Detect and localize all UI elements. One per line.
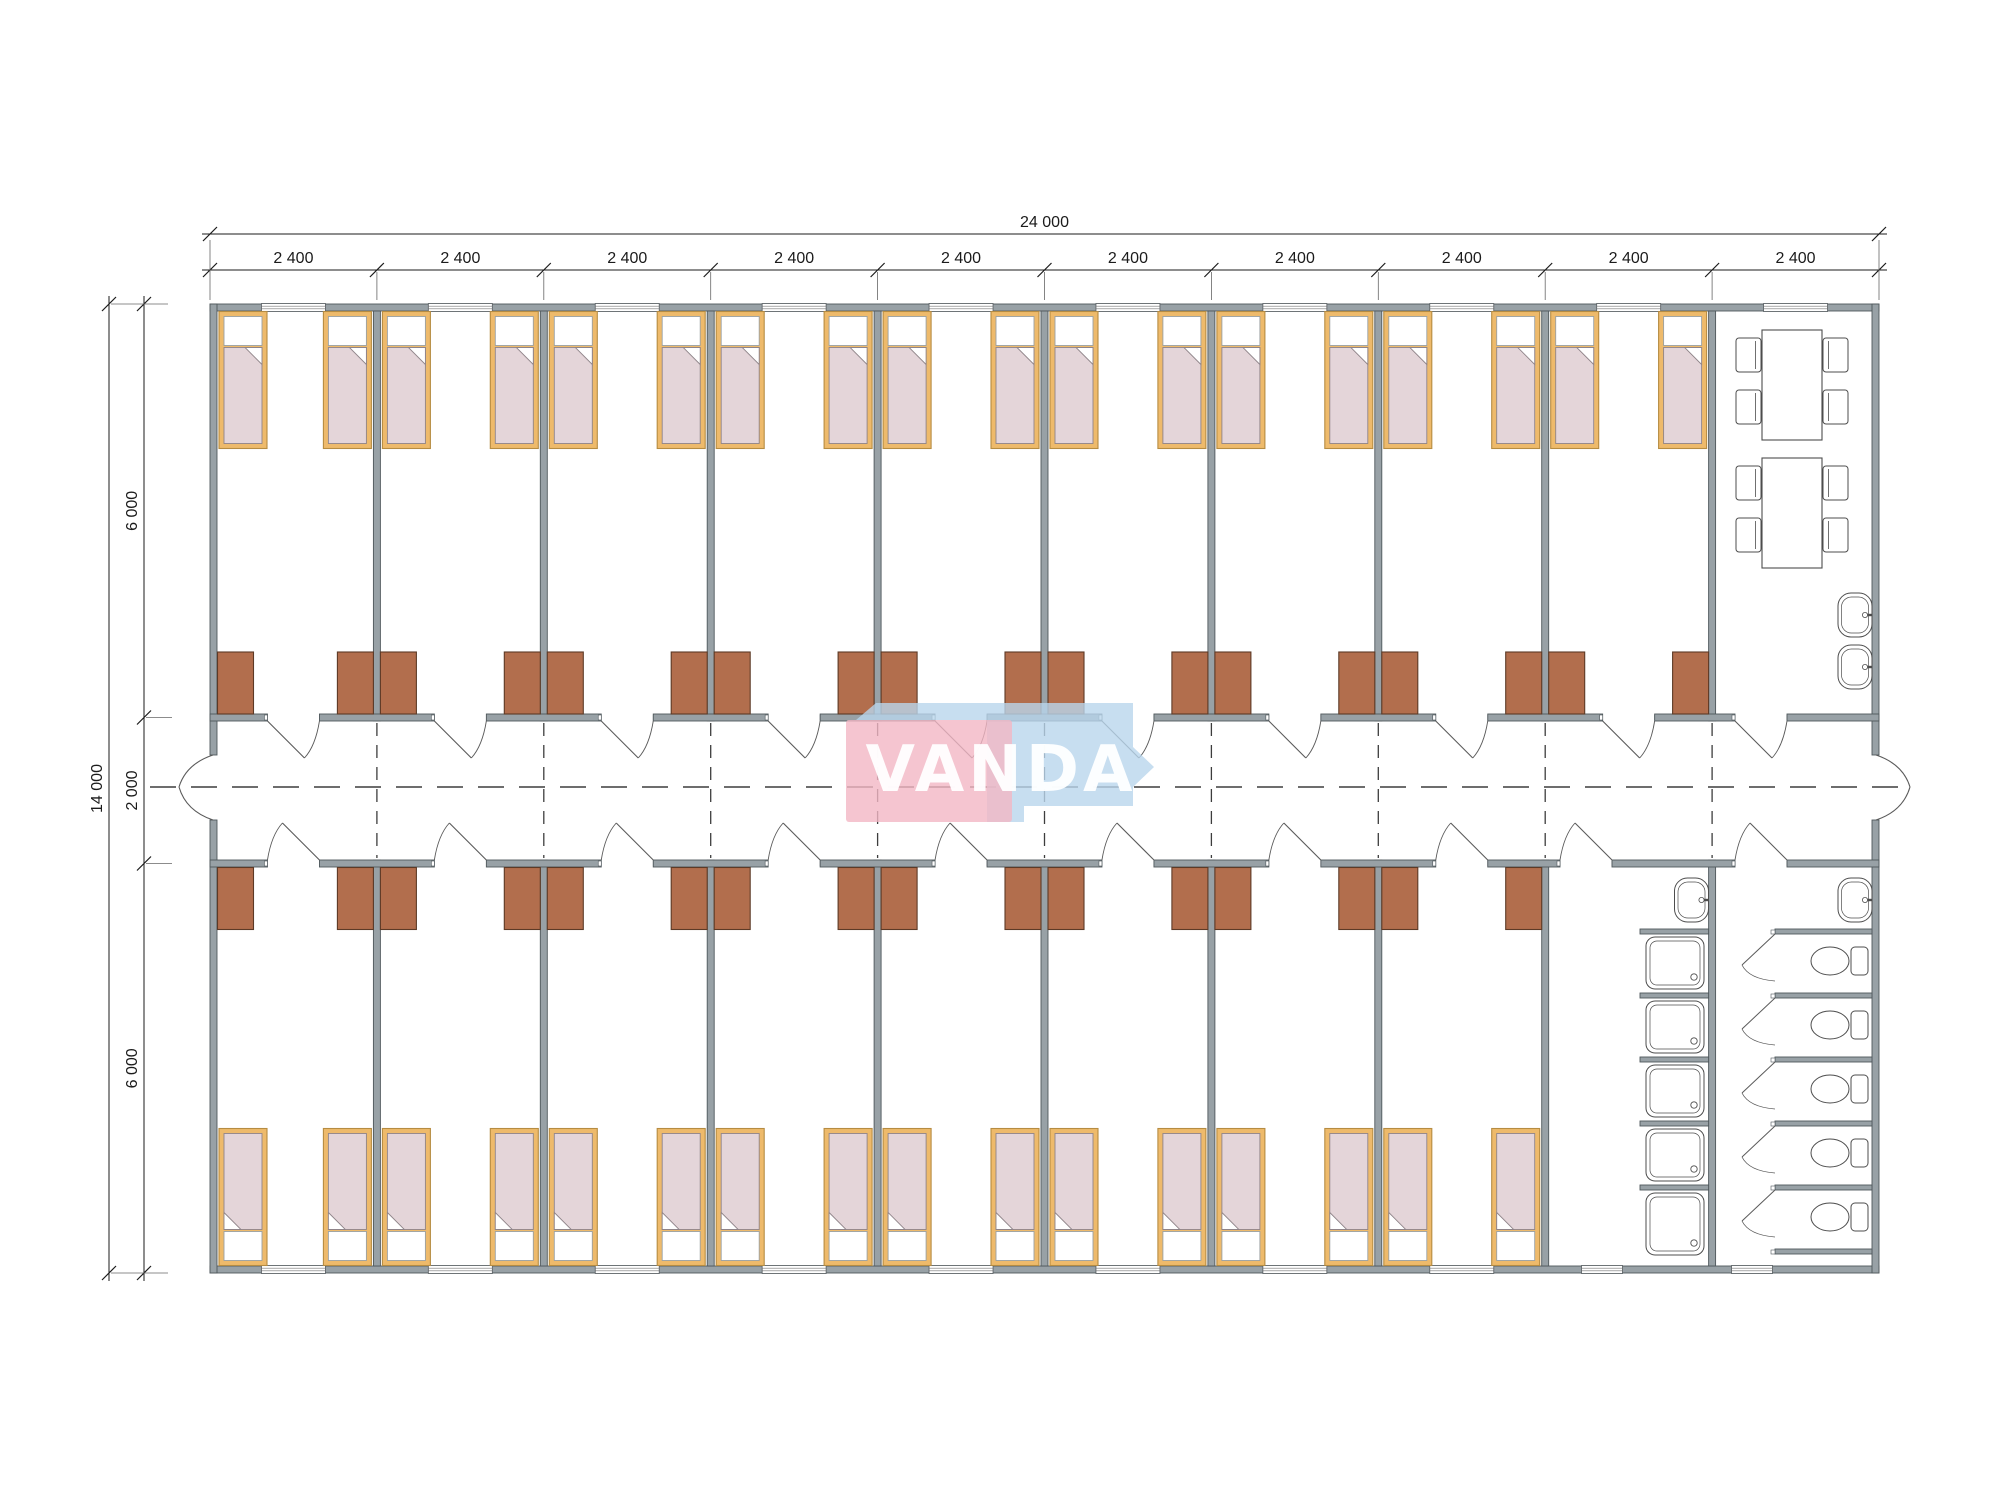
window — [1732, 1266, 1773, 1274]
chair — [1736, 518, 1761, 552]
sink-tap — [1699, 897, 1704, 902]
door-swing — [1139, 721, 1154, 758]
door-leaf — [616, 823, 653, 860]
bed-pillow — [662, 1232, 700, 1261]
dim-label: 2 400 — [1275, 250, 1315, 267]
dim-label: 24 000 — [1020, 214, 1069, 231]
stall-partition — [1775, 1057, 1872, 1062]
door-swing — [1560, 823, 1575, 860]
wall-cap — [264, 715, 267, 720]
corridor-wall — [1612, 860, 1735, 867]
bed-blanket — [996, 348, 1034, 444]
corridor-wall — [1321, 714, 1436, 721]
bed-blanket — [1664, 348, 1702, 444]
door-leaf — [1117, 823, 1154, 860]
wardrobe — [337, 868, 373, 930]
bed-blanket — [1055, 348, 1093, 444]
corridor-wall — [1154, 860, 1269, 867]
stall-partition — [1775, 1121, 1872, 1126]
corridor-wall — [1787, 714, 1879, 721]
sink-tap — [1862, 664, 1867, 669]
stall-partition — [1775, 1249, 1872, 1254]
window — [762, 1266, 826, 1274]
dim-label: 6 000 — [124, 491, 141, 531]
wall-cap — [264, 861, 267, 866]
toilet-bowl — [1811, 1075, 1849, 1103]
bed-blanket — [1163, 348, 1201, 444]
dim-label: 14 000 — [89, 764, 106, 813]
window — [762, 304, 826, 312]
wall-cap — [1732, 715, 1735, 720]
entrance-door-leaf — [1876, 755, 1910, 787]
wall-cap — [1433, 861, 1436, 866]
door-swing — [1436, 823, 1451, 860]
stall-door-leaf — [1742, 998, 1775, 1029]
bed-pillow — [829, 317, 867, 346]
bed-blanket — [888, 348, 926, 444]
toilet-bowl — [1811, 947, 1849, 975]
partition-wall — [540, 860, 547, 1266]
shower-partition — [1640, 1121, 1709, 1126]
corridor-wall — [1488, 860, 1560, 867]
partition-wall — [1208, 311, 1215, 721]
wardrobe — [218, 868, 254, 930]
window — [595, 1266, 659, 1274]
window — [1430, 304, 1494, 312]
chair — [1823, 518, 1848, 552]
stall-door-swing — [1742, 1093, 1775, 1109]
wardrobe — [337, 652, 373, 714]
door-swing — [768, 823, 783, 860]
bed-blanket — [829, 1134, 867, 1230]
window — [1263, 1266, 1327, 1274]
wardrobe — [504, 868, 540, 930]
bed-pillow — [1055, 1232, 1093, 1261]
bed-pillow — [1163, 317, 1201, 346]
stall-door-leaf — [1742, 1126, 1775, 1157]
bed-blanket — [829, 348, 867, 444]
bed-pillow — [1497, 1232, 1535, 1261]
corridor-wall — [486, 714, 601, 721]
wardrobe — [1382, 868, 1418, 930]
door-swing — [267, 823, 282, 860]
door-swing — [471, 721, 486, 758]
partition-wall — [1542, 860, 1549, 1266]
wardrobe — [881, 868, 917, 930]
bed-pillow — [996, 317, 1034, 346]
shower-tray — [1646, 1065, 1704, 1117]
wall-cap — [1771, 994, 1775, 998]
wall-cap — [1557, 861, 1560, 866]
stall-door-leaf — [1742, 934, 1775, 965]
chair — [1823, 390, 1848, 424]
bed-pillow — [328, 1232, 366, 1261]
shower-tray — [1646, 1129, 1704, 1181]
window — [1582, 1266, 1623, 1274]
bed-pillow — [721, 317, 759, 346]
sink-tap — [1862, 612, 1867, 617]
dim-label: 2 400 — [273, 250, 313, 267]
dim-label: 2 400 — [774, 250, 814, 267]
wall-cap — [1771, 930, 1775, 934]
bed-pillow — [888, 317, 926, 346]
bed-pillow — [495, 1232, 533, 1261]
door-swing — [805, 721, 820, 758]
bed-blanket — [224, 1134, 262, 1230]
bed-pillow — [1330, 1232, 1368, 1261]
dim-label: 2 400 — [440, 250, 480, 267]
bed-blanket — [224, 348, 262, 444]
stall-door-swing — [1742, 1029, 1775, 1045]
wall-cap — [598, 861, 601, 866]
bed-blanket — [1389, 1134, 1427, 1230]
bed-pillow — [224, 317, 262, 346]
bed-pillow — [1222, 317, 1260, 346]
stall-door-swing — [1742, 1221, 1775, 1237]
corridor-wall — [1488, 714, 1603, 721]
door-leaf — [1603, 721, 1640, 758]
door-leaf — [950, 823, 987, 860]
wardrobe — [547, 868, 583, 930]
wardrobe — [504, 652, 540, 714]
bed-blanket — [554, 1134, 592, 1230]
window — [1263, 304, 1327, 312]
chair — [1736, 390, 1761, 424]
stall-door-swing — [1742, 1157, 1775, 1173]
bed-blanket — [1163, 1134, 1201, 1230]
wall-cap — [1266, 715, 1269, 720]
bed-blanket — [996, 1134, 1034, 1230]
stall-partition — [1775, 929, 1872, 934]
bed-blanket — [1389, 348, 1427, 444]
shower-partition — [1640, 929, 1709, 934]
shower-tray — [1646, 1001, 1704, 1053]
bed-blanket — [1055, 1134, 1093, 1230]
stall-partition — [1775, 1185, 1872, 1190]
door-swing — [1102, 823, 1117, 860]
toilet-bowl — [1811, 1203, 1849, 1231]
toilet-tank — [1851, 1011, 1868, 1039]
dim-label: 2 400 — [941, 250, 981, 267]
floor-plan: 24 0002 4002 4002 4002 4002 4002 4002 40… — [0, 0, 2000, 1508]
bed-pillow — [224, 1232, 262, 1261]
wall-cap — [1433, 715, 1436, 720]
wardrobe — [1673, 652, 1709, 714]
bed-pillow — [1055, 317, 1093, 346]
entrance-door-leaf — [179, 755, 213, 787]
bed-pillow — [662, 317, 700, 346]
door-swing — [638, 721, 653, 758]
bed-pillow — [996, 1232, 1034, 1261]
bed-pillow — [1389, 1232, 1427, 1261]
bed-blanket — [1222, 1134, 1260, 1230]
wardrobe — [671, 868, 707, 930]
sink-tap — [1862, 897, 1867, 902]
window — [1430, 1266, 1494, 1274]
bed-blanket — [721, 1134, 759, 1230]
corridor-wall — [486, 860, 601, 867]
dim-label: 2 400 — [1609, 250, 1649, 267]
toilet-tank — [1851, 1203, 1868, 1231]
wardrobe — [1215, 868, 1251, 930]
door-leaf — [1436, 721, 1473, 758]
wall-cap — [1771, 1250, 1775, 1254]
stall-door-swing — [1742, 965, 1775, 981]
partition-wall — [1041, 860, 1048, 1266]
wardrobe — [1172, 652, 1208, 714]
wall-cap — [431, 861, 434, 866]
wardrobe — [1172, 868, 1208, 930]
corridor-wall — [210, 860, 267, 867]
window — [929, 304, 993, 312]
bed-pillow — [1222, 1232, 1260, 1261]
door-swing — [1473, 721, 1488, 758]
door-leaf — [267, 721, 304, 758]
dim-label: 2 400 — [1108, 250, 1148, 267]
wardrobe — [1549, 652, 1585, 714]
bed-pillow — [328, 317, 366, 346]
bed-pillow — [387, 1232, 425, 1261]
dining-table — [1762, 458, 1822, 568]
wall-cap — [765, 715, 768, 720]
bed-blanket — [1497, 1134, 1535, 1230]
bed-pillow — [1497, 317, 1535, 346]
window — [428, 1266, 492, 1274]
dim-label: 2 400 — [607, 250, 647, 267]
bed-blanket — [1497, 348, 1535, 444]
bed-pillow — [495, 317, 533, 346]
wall-cap — [1732, 861, 1735, 866]
door-leaf — [783, 823, 820, 860]
bed-pillow — [554, 317, 592, 346]
wardrobe — [714, 652, 750, 714]
stall-partition — [1775, 993, 1872, 998]
drawing-page: 24 0002 4002 4002 4002 4002 4002 4002 40… — [0, 0, 2000, 1508]
bed-pillow — [1556, 317, 1594, 346]
window — [261, 304, 325, 312]
wardrobe — [714, 868, 750, 930]
door-leaf — [282, 823, 319, 860]
wall-cap — [1099, 861, 1102, 866]
bed-blanket — [721, 348, 759, 444]
wardrobe — [380, 868, 416, 930]
wardrobe — [1506, 652, 1542, 714]
toilet-bowl — [1811, 1139, 1849, 1167]
wall-cap — [1771, 1058, 1775, 1062]
toilet-tank — [1851, 1075, 1868, 1103]
door-swing — [1306, 721, 1321, 758]
chair — [1736, 466, 1761, 500]
partition-wall — [1709, 311, 1716, 721]
corridor-wall — [319, 714, 434, 721]
bed-blanket — [554, 348, 592, 444]
bed-pillow — [888, 1232, 926, 1261]
bed-blanket — [1556, 348, 1594, 444]
door-leaf — [1284, 823, 1321, 860]
exterior-wall-left — [210, 820, 217, 1273]
door-swing — [1269, 823, 1284, 860]
bed-blanket — [495, 1134, 533, 1230]
door-swing — [434, 823, 449, 860]
partition-wall — [1709, 860, 1716, 1266]
wardrobe — [838, 652, 874, 714]
bed-blanket — [387, 348, 425, 444]
toilet-tank — [1851, 947, 1868, 975]
bed-blanket — [662, 348, 700, 444]
door-swing — [601, 823, 616, 860]
corridor-wall — [820, 860, 935, 867]
wardrobe — [1215, 652, 1251, 714]
dining-table — [1762, 330, 1822, 440]
bed-pillow — [1664, 317, 1702, 346]
corridor-wall — [653, 714, 768, 721]
window — [261, 1266, 325, 1274]
door-leaf — [449, 823, 486, 860]
window — [595, 304, 659, 312]
dim-label: 2 000 — [124, 770, 141, 810]
door-swing — [1640, 721, 1655, 758]
partition-wall — [707, 311, 714, 721]
wall-cap — [932, 861, 935, 866]
entrance-door-leaf — [1876, 787, 1910, 820]
chair — [1823, 338, 1848, 372]
corridor-wall — [1655, 714, 1735, 721]
bed-pillow — [1330, 317, 1368, 346]
partition-wall — [874, 860, 881, 1266]
bed-pillow — [1163, 1232, 1201, 1261]
corridor-wall — [1321, 860, 1436, 867]
window — [1096, 304, 1160, 312]
exterior-wall-left — [210, 304, 217, 755]
corridor-wall — [1787, 860, 1879, 867]
dim-label: 6 000 — [124, 1048, 141, 1088]
door-leaf — [1269, 721, 1306, 758]
exterior-wall-right — [1872, 304, 1879, 755]
wardrobe — [1506, 868, 1542, 930]
shower-partition — [1640, 993, 1709, 998]
door-leaf — [1451, 823, 1488, 860]
wardrobe — [1005, 868, 1041, 930]
bed-blanket — [662, 1134, 700, 1230]
entrance-door-leaf — [179, 787, 213, 820]
door-swing — [935, 823, 950, 860]
bed-pillow — [829, 1232, 867, 1261]
partition-wall — [540, 311, 547, 721]
bed-blanket — [328, 1134, 366, 1230]
bed-blanket — [1330, 348, 1368, 444]
shower-partition — [1640, 1057, 1709, 1062]
partition-wall — [1375, 311, 1382, 721]
bed-pillow — [554, 1232, 592, 1261]
wall-cap — [1771, 1122, 1775, 1126]
window — [1597, 304, 1661, 312]
door-leaf — [434, 721, 471, 758]
wardrobe — [1048, 868, 1084, 930]
door-leaf — [1735, 721, 1772, 758]
shower-partition — [1640, 1185, 1709, 1190]
partition-wall — [707, 860, 714, 1266]
bed-blanket — [495, 348, 533, 444]
wall-cap — [598, 715, 601, 720]
chair — [1823, 466, 1848, 500]
watermark-text: VANDA — [866, 733, 1137, 807]
dim-label: 2 400 — [1776, 250, 1816, 267]
wall-cap — [765, 861, 768, 866]
window — [1764, 304, 1828, 312]
bed-pillow — [1389, 317, 1427, 346]
door-swing — [304, 721, 319, 758]
partition-wall — [373, 311, 380, 721]
wardrobe — [1339, 868, 1375, 930]
dim-label: 2 400 — [1442, 250, 1482, 267]
toilet-bowl — [1811, 1011, 1849, 1039]
wardrobe — [1382, 652, 1418, 714]
partition-wall — [1208, 860, 1215, 1266]
bed-blanket — [328, 348, 366, 444]
shower-tray — [1646, 937, 1704, 989]
corridor-wall — [1154, 714, 1269, 721]
bed-blanket — [1222, 348, 1260, 444]
corridor-wall — [319, 860, 434, 867]
door-leaf — [1575, 823, 1612, 860]
stall-door-leaf — [1742, 1062, 1775, 1093]
door-swing — [1735, 823, 1750, 860]
wall-cap — [431, 715, 434, 720]
wall-cap — [1266, 861, 1269, 866]
window — [428, 304, 492, 312]
door-swing — [1772, 721, 1787, 758]
bed-blanket — [1330, 1134, 1368, 1230]
wardrobe — [838, 868, 874, 930]
corridor-wall — [210, 714, 267, 721]
wall-cap — [1600, 715, 1603, 720]
toilet-tank — [1851, 1139, 1868, 1167]
partition-wall — [874, 311, 881, 721]
wall-cap — [1771, 1186, 1775, 1190]
window — [929, 1266, 993, 1274]
partition-wall — [1542, 311, 1549, 721]
door-leaf — [601, 721, 638, 758]
bed-blanket — [888, 1134, 926, 1230]
door-leaf — [1750, 823, 1787, 860]
door-leaf — [768, 721, 805, 758]
window — [1096, 1266, 1160, 1274]
chair — [1736, 338, 1761, 372]
wardrobe — [1339, 652, 1375, 714]
bed-pillow — [721, 1232, 759, 1261]
bed-pillow — [387, 317, 425, 346]
exterior-wall-right — [1872, 820, 1879, 1273]
partition-wall — [373, 860, 380, 1266]
bed-blanket — [387, 1134, 425, 1230]
wardrobe — [547, 652, 583, 714]
corridor-wall — [653, 860, 768, 867]
wardrobe — [671, 652, 707, 714]
partition-wall — [1375, 860, 1382, 1266]
stall-door-leaf — [1742, 1190, 1775, 1221]
corridor-wall — [987, 860, 1102, 867]
partition-wall — [1041, 311, 1048, 721]
wardrobe — [218, 652, 254, 714]
wardrobe — [380, 652, 416, 714]
